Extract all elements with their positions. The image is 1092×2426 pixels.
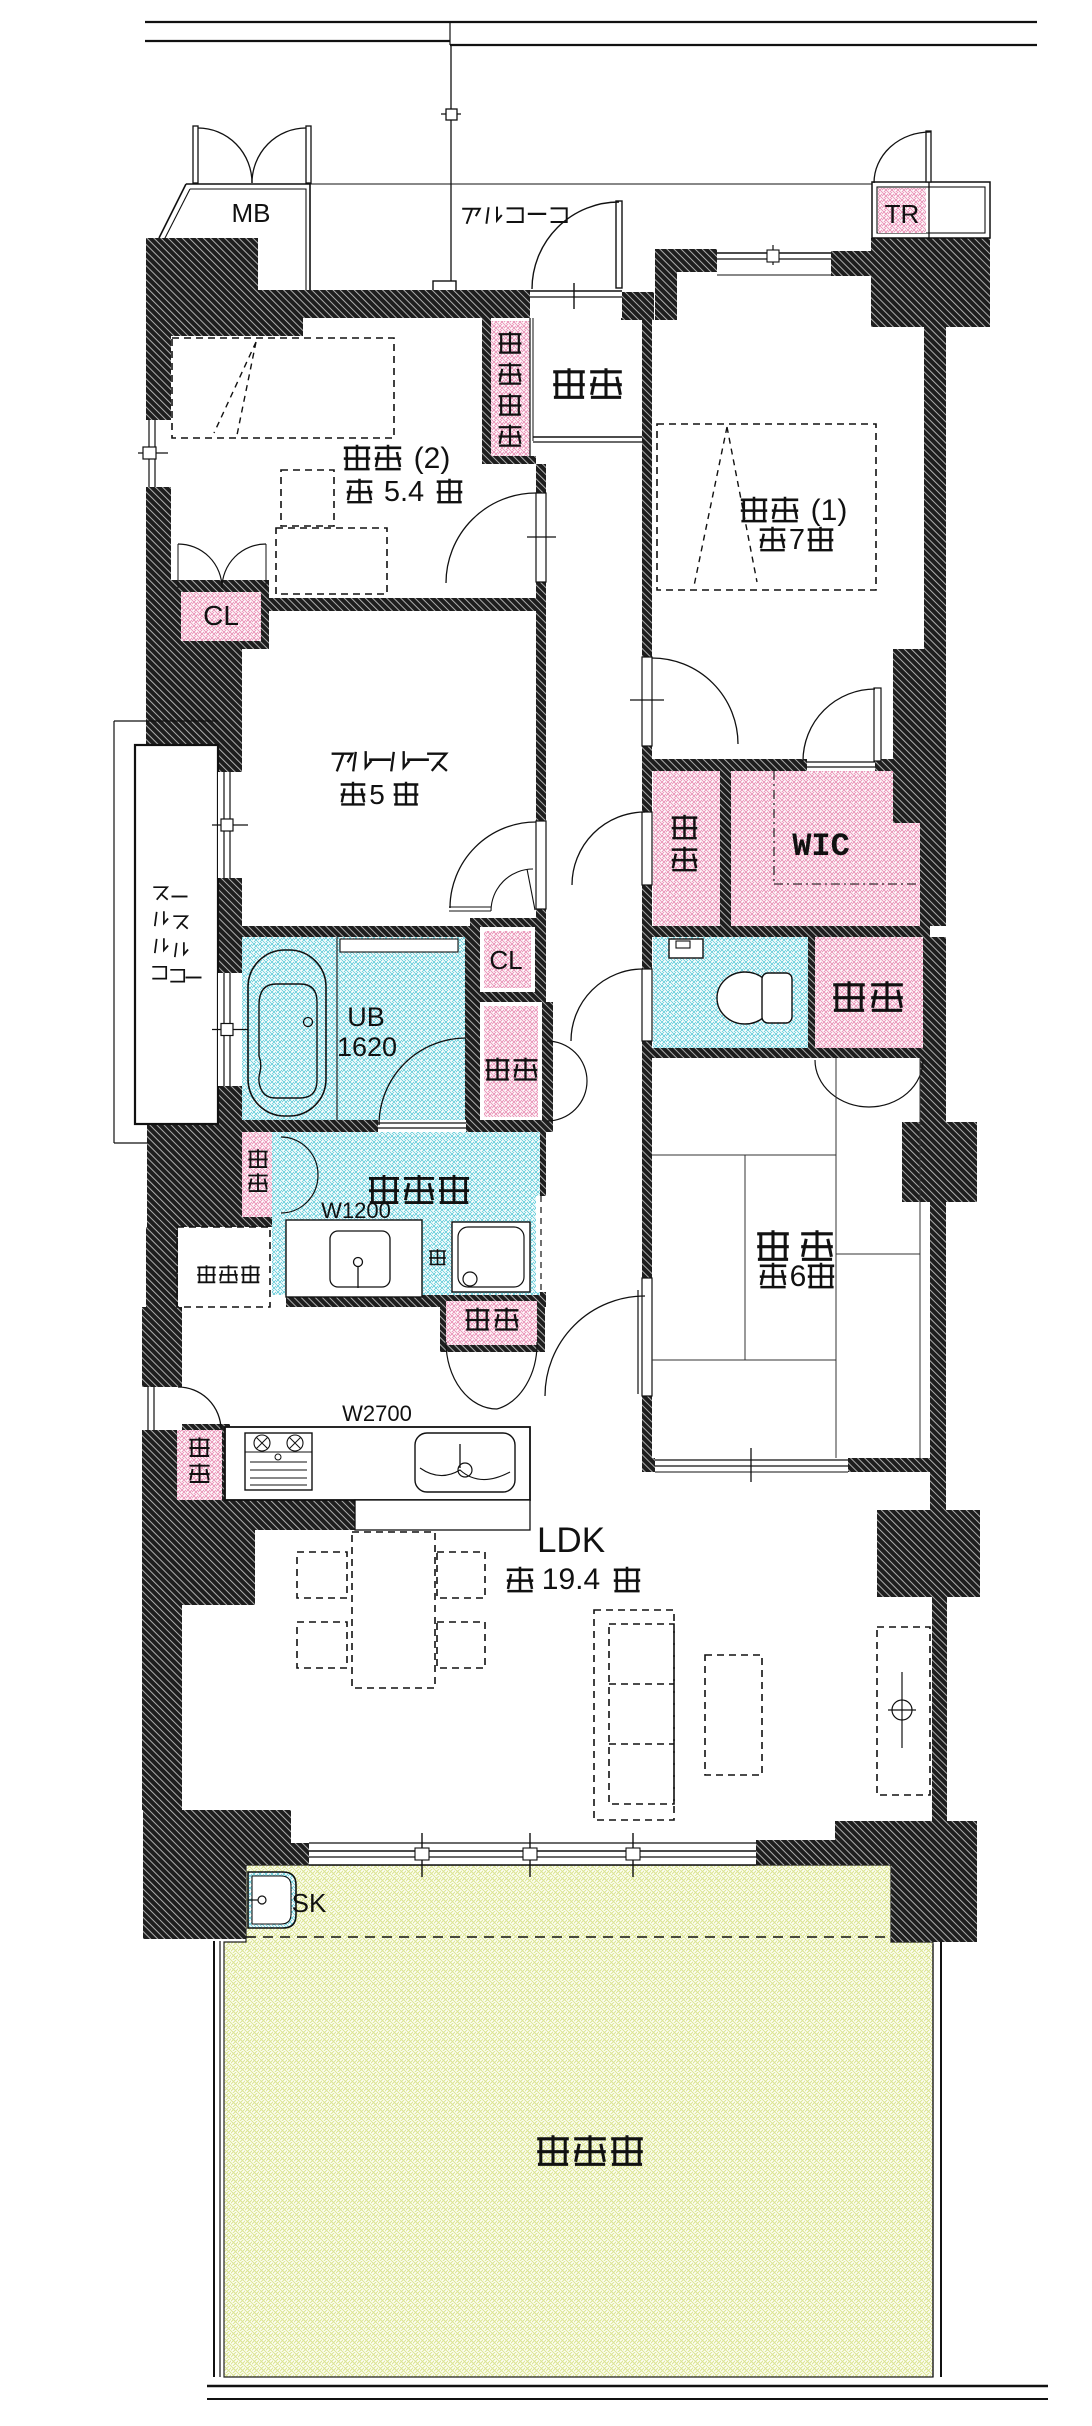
svg-text:WIC: WIC [792, 828, 850, 865]
svg-text:6: 6 [790, 1260, 807, 1293]
svg-text:CL: CL [203, 600, 239, 631]
svg-text:MB: MB [232, 198, 271, 228]
svg-text:19.4: 19.4 [542, 1563, 600, 1596]
svg-text:(2): (2) [414, 442, 451, 475]
svg-text:SK: SK [292, 1888, 327, 1918]
svg-text:W1200: W1200 [321, 1198, 391, 1223]
svg-text:1620: 1620 [337, 1032, 397, 1062]
svg-text:5: 5 [369, 779, 385, 810]
svg-text:CL: CL [489, 945, 522, 975]
svg-text:TR: TR [885, 199, 920, 229]
svg-text:7: 7 [789, 524, 805, 556]
svg-text:(1): (1) [811, 494, 848, 527]
svg-text:W2700: W2700 [342, 1401, 412, 1426]
svg-text:5.4: 5.4 [384, 476, 424, 508]
svg-text:UB: UB [347, 1002, 385, 1032]
svg-text:LDK: LDK [537, 1521, 605, 1560]
